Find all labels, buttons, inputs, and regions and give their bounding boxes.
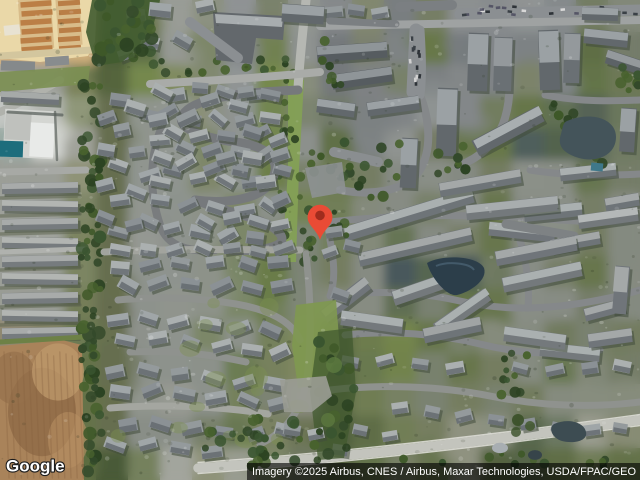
svg-text:Imagery ©2025 Airbus, CNES / A: Imagery ©2025 Airbus, CNES / Airbus, Max…: [252, 466, 636, 478]
svg-text:Google: Google: [6, 457, 65, 476]
